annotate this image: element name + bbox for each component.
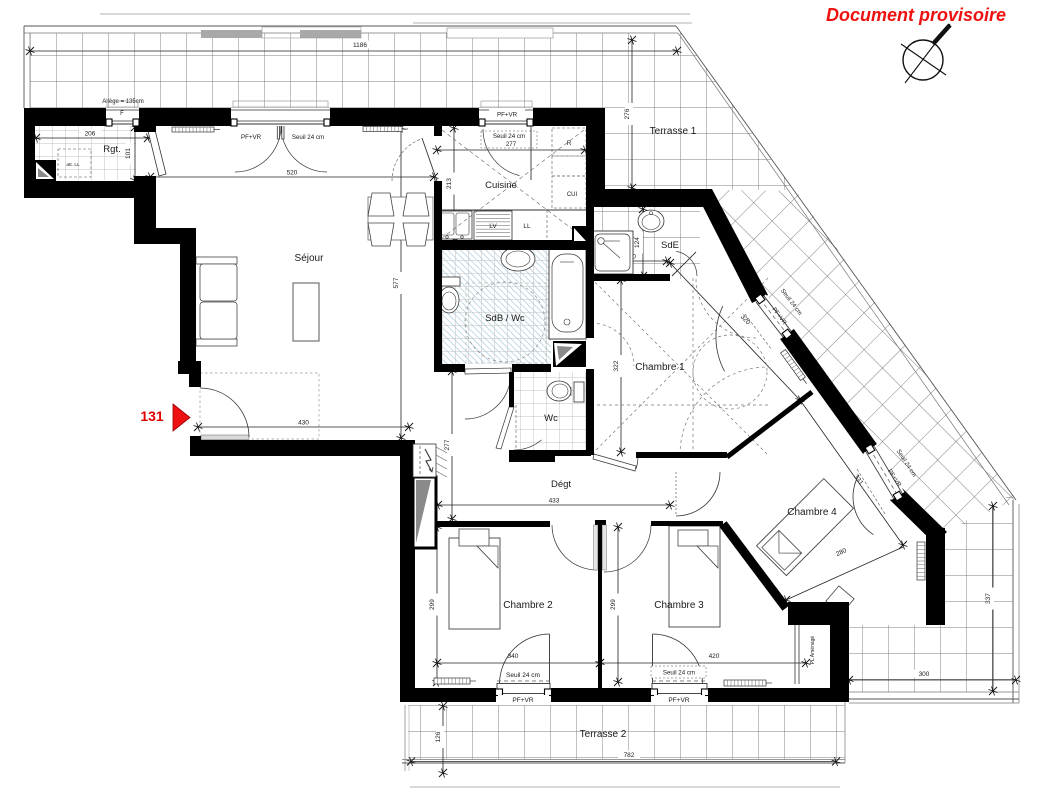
svg-text:Séjour: Séjour: [295, 253, 325, 264]
svg-text:206: 206: [85, 131, 96, 138]
svg-text:PF+VR: PF+VR: [241, 134, 262, 141]
svg-text:299: 299: [429, 599, 436, 610]
svg-text:PF+VR: PF+VR: [497, 112, 518, 119]
svg-text:att. LL: att. LL: [66, 162, 80, 168]
svg-text:430: 430: [298, 420, 309, 427]
svg-text:Dégt: Dégt: [551, 479, 571, 490]
svg-text:Chambre 1: Chambre 1: [635, 362, 685, 373]
svg-text:Chambre 4: Chambre 4: [787, 507, 837, 518]
svg-text:Terrasse 1: Terrasse 1: [650, 126, 697, 137]
svg-text:Chambre 3: Chambre 3: [654, 600, 704, 611]
svg-text:PF+VR: PF+VR: [512, 697, 533, 704]
svg-text:577: 577: [393, 277, 400, 288]
svg-text:Wc: Wc: [544, 413, 558, 424]
svg-text:Chambre 2: Chambre 2: [503, 600, 553, 611]
svg-text:LV: LV: [489, 223, 497, 230]
svg-text:299: 299: [610, 599, 617, 610]
svg-text:782: 782: [624, 752, 635, 759]
svg-text:Seuil 24 cm: Seuil 24 cm: [493, 133, 525, 140]
svg-text:300: 300: [919, 671, 930, 678]
svg-text:420: 420: [709, 653, 720, 660]
svg-text:Cuisine: Cuisine: [485, 180, 517, 191]
svg-text:Terrasse 2: Terrasse 2: [580, 729, 627, 740]
svg-text:Seuil 24 cm: Seuil 24 cm: [506, 672, 540, 679]
svg-text:PL Aménagé: PL Aménagé: [810, 636, 816, 665]
svg-text:124: 124: [634, 237, 641, 248]
svg-text:213: 213: [446, 178, 453, 189]
svg-text:CUI: CUI: [567, 192, 578, 198]
svg-text:F: F: [120, 111, 124, 117]
svg-text:Seuil 24 cm: Seuil 24 cm: [292, 134, 324, 141]
svg-text:Document provisoire: Document provisoire: [826, 5, 1006, 25]
svg-text:PF+VR: PF+VR: [668, 697, 689, 704]
svg-text:126: 126: [435, 731, 442, 742]
svg-text:101: 101: [125, 148, 132, 159]
svg-text:1186: 1186: [353, 42, 367, 49]
svg-text:R: R: [567, 140, 572, 147]
svg-text:276: 276: [624, 108, 631, 119]
svg-text:433: 433: [549, 498, 560, 505]
svg-text:277: 277: [444, 439, 451, 450]
svg-text:131: 131: [140, 408, 164, 424]
svg-text:LL: LL: [523, 223, 531, 230]
svg-text:SdE: SdE: [661, 240, 679, 251]
svg-text:Allège = 135cm: Allège = 135cm: [102, 99, 144, 105]
svg-text:SdB / Wc: SdB / Wc: [485, 313, 525, 324]
svg-text:520: 520: [287, 170, 298, 177]
svg-text:337: 337: [985, 593, 992, 604]
svg-text:322: 322: [613, 360, 620, 371]
svg-text:277: 277: [506, 141, 517, 148]
svg-text:Rgt.: Rgt.: [103, 144, 120, 155]
svg-text:Seuil 24 cm: Seuil 24 cm: [663, 670, 695, 677]
